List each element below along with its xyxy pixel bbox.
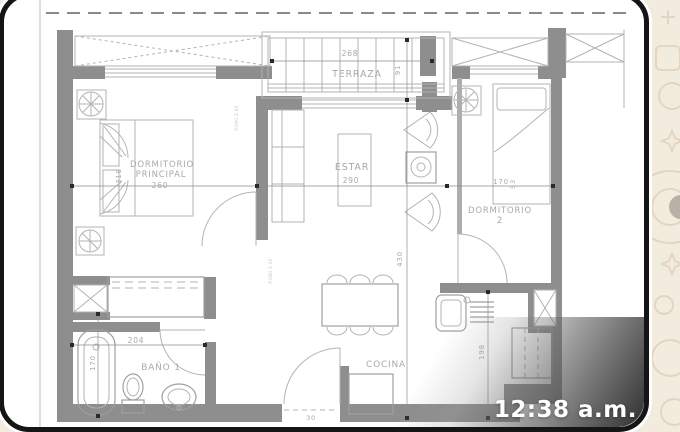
plan-label-bano-name: BAÑO 1 <box>141 362 181 373</box>
armchair-icon <box>404 112 438 148</box>
circle-doodle-icon <box>659 83 680 109</box>
plan-label-dorm2-width: 170 <box>493 178 509 186</box>
plan-label-dorm1-depth: 318 <box>115 168 123 184</box>
plan-label-dorm1-line1: DORMITORIO <box>130 160 194 170</box>
ceiling-fan2-icon <box>76 227 104 255</box>
armchair2-icon <box>405 193 440 231</box>
plan-label-dorm2-line2: 2 <box>497 216 503 226</box>
door-entry-arc <box>284 348 340 410</box>
plan-label-bano-depth: 170 <box>89 355 97 371</box>
plus-doodle-icon <box>661 10 675 24</box>
plan-label-door-tag-2: P.080 2.10 <box>268 258 274 283</box>
circle3-doodle-icon <box>661 399 680 425</box>
closet-topright2-icon <box>566 30 624 108</box>
stove-icon <box>470 302 494 322</box>
side-table-lamp-icon <box>406 152 436 183</box>
plan-label-door-tag-1: P.090 2.40 <box>234 105 240 130</box>
ceiling-fan-icon <box>77 90 106 119</box>
wardrobe-dorm2-icon <box>512 328 552 378</box>
kitchen-sink-icon <box>436 295 470 331</box>
duct-x-icon <box>534 290 556 326</box>
plan-label-terraza-name: TERRAZA <box>331 69 382 80</box>
timestamp: 12:38 a.m. <box>494 397 637 423</box>
plan-label-estar-width: 290 <box>343 176 360 185</box>
plan-label-dorm2-line1: DORMITORIO <box>468 206 532 216</box>
plan-label-terraza-width: 268 <box>342 49 359 58</box>
image-message-card[interactable]: TERRAZA26891DORMITORIOPRINCIPAL260318EST… <box>0 0 649 432</box>
bathroom-sink-icon <box>162 384 196 410</box>
closet-dorm1-icon <box>75 36 270 66</box>
bathtub-icon <box>78 330 115 415</box>
door-dorm2-arc <box>458 234 507 283</box>
hall-closet-icon <box>108 277 204 317</box>
plan-label-cocina-depth: 198 <box>478 344 486 360</box>
plan-label-estar-length: 430 <box>396 251 404 267</box>
plan-label-estar-name: ESTAR <box>335 162 369 173</box>
plan-label-terraza-depth: 91 <box>394 65 402 76</box>
sofa-icon <box>272 110 304 222</box>
ceiling-fan3-icon <box>452 86 481 115</box>
door-dorm1-arc <box>202 192 256 246</box>
small-circle-doodle-icon <box>655 296 673 314</box>
window-dorm2 <box>470 69 538 74</box>
plan-label-dorm2-extra: 53 <box>509 179 517 189</box>
sliding-door-terraza <box>302 100 416 108</box>
closet-topright-icon <box>452 38 548 66</box>
closet-hall-x-icon <box>74 285 107 312</box>
chat-image-viewer: TERRAZA26891DORMITORIOPRINCIPAL260318EST… <box>0 0 680 432</box>
circle2-doodle-icon <box>652 340 680 376</box>
walls-layer <box>57 28 566 422</box>
sparkle2-doodle-icon <box>662 254 680 274</box>
plan-label-dorm1-line2: PRINCIPAL <box>136 170 187 180</box>
plan-label-dorm1-width: 260 <box>152 181 169 190</box>
plan-label-cocina-name: COCINA <box>366 360 406 370</box>
square-doodle-icon <box>656 46 680 70</box>
window-dorm1 <box>105 69 216 77</box>
plan-label-entry-width: 30 <box>306 414 316 422</box>
dining-table-icon <box>322 275 398 335</box>
plan-label-bano-width: 204 <box>128 336 145 345</box>
accent-circle-doodle-icon <box>669 195 680 219</box>
sparkle-doodle-icon <box>662 131 680 151</box>
floor-plan-image: TERRAZA26891DORMITORIOPRINCIPAL260318EST… <box>0 0 649 432</box>
